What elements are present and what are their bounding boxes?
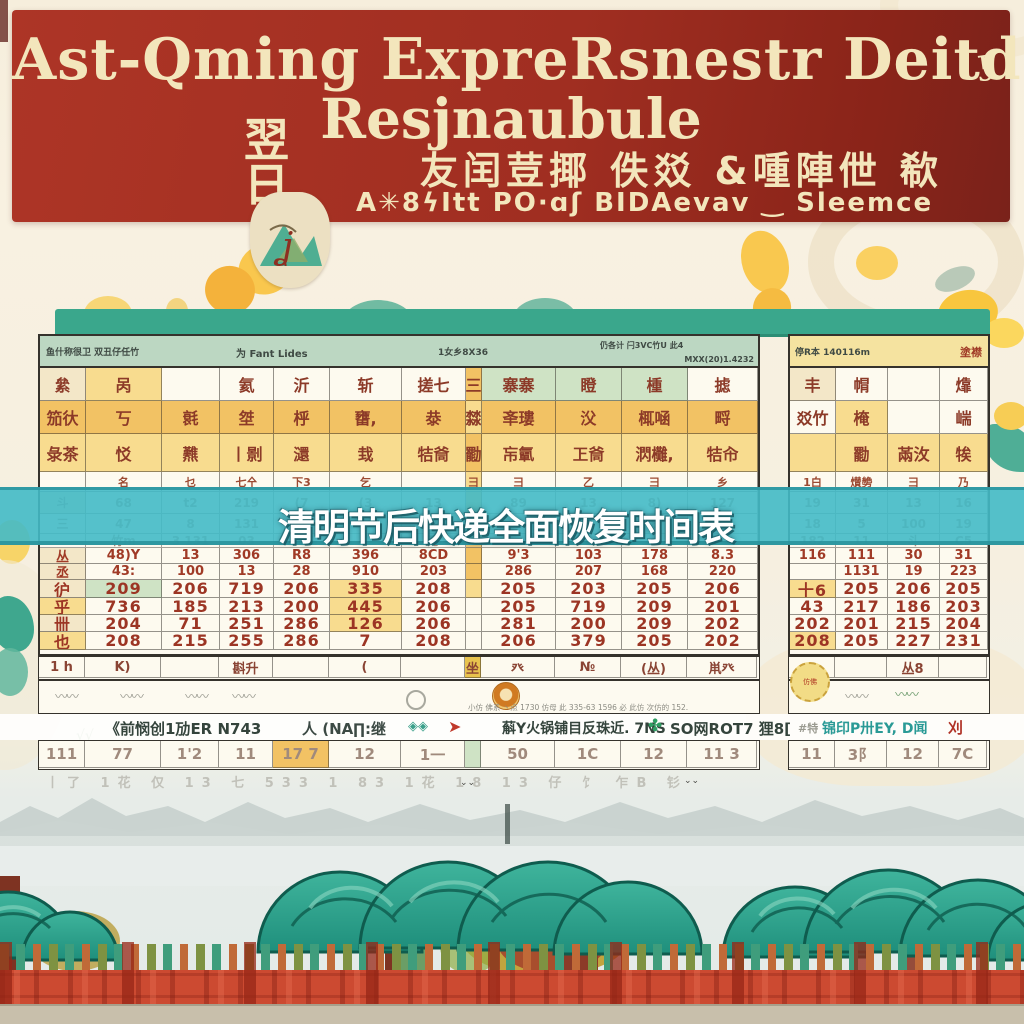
table-cell: K)	[85, 657, 161, 678]
table-cell: 三	[466, 368, 482, 401]
main-table-header: 鱼什称很卫 双丑仔任竹 为 Fant Lides 1女乡8X36 仍各计 闩3V…	[40, 336, 758, 368]
table-cell: 斟升	[219, 657, 273, 678]
petal-decoration	[994, 402, 1024, 430]
poster-canvas: √√ Ast-Qming ExpreRsnestr Deitde Resjnau…	[0, 0, 1024, 1024]
table-cell: 㲤	[162, 401, 220, 434]
table-row: 丰㡌㸆	[790, 368, 988, 401]
table-cell: 㸐	[162, 434, 220, 472]
table-row: 1 hK)斟升(坐癶№(丛)鼡癶	[39, 657, 759, 678]
table-cell: 寨寨	[482, 368, 556, 401]
table-cell: 19	[888, 564, 940, 580]
table-cell: 摅	[688, 368, 758, 401]
table-cell: 㽫,	[330, 401, 402, 434]
table-cell: 208	[790, 632, 836, 650]
footer-strip: 1 hK)斟升(坐癶№(丛)鼡癶	[38, 656, 760, 680]
table-cell: 201	[688, 598, 758, 615]
table-cell: 206	[888, 580, 940, 598]
table-cell: 227	[888, 632, 940, 650]
table-cell: 205	[622, 632, 688, 650]
table-cell: 217	[836, 598, 888, 615]
banner-pseudo-chinese-line: 友闰荳揶 佚㸚 &喠陣伳 欷	[420, 140, 943, 195]
table-cell	[401, 657, 465, 678]
table-cell: 209	[622, 598, 688, 615]
table-cell: 220	[688, 564, 758, 580]
table-cell: 㭺	[836, 401, 888, 434]
table-cell: 㘶	[220, 401, 274, 434]
footer-brand-text: #特	[798, 720, 818, 736]
table-cell: 㔥	[466, 434, 482, 472]
table-row: 絫呙氦沂斩搓七三寨寨瞪㮔摅	[40, 368, 758, 401]
table-cell: (	[329, 657, 401, 678]
table-cell: 205	[622, 580, 688, 598]
table-cell	[466, 598, 482, 615]
table-cell: 208	[86, 632, 162, 650]
table-cell: 㔥	[836, 434, 888, 472]
table-cell: 㪯㻲	[482, 401, 556, 434]
table-row: 208205227231	[790, 632, 988, 650]
table-cell: 㴸㰙,	[622, 434, 688, 472]
table-cell: 丨㔀	[220, 434, 274, 472]
table-cell: 斩	[330, 368, 402, 401]
table-cell	[790, 434, 836, 472]
table-cell: 205	[482, 580, 556, 598]
table-cell: 207	[556, 564, 622, 580]
table-cell: 116	[790, 548, 836, 564]
header-cell: 塗襟	[960, 344, 982, 360]
table-cell: 㣗	[40, 580, 86, 598]
overlay-title: 清明节后快递全面恢复时间表	[278, 497, 733, 551]
table-cell: 㸆	[940, 368, 988, 401]
table-cell: 㭯㖤	[622, 401, 688, 434]
sketch-doodle: 〰〰	[845, 686, 867, 705]
header-cell: 1女乡8X36	[438, 345, 488, 358]
table-cell	[466, 580, 482, 598]
table-cell: 㽟	[688, 401, 758, 434]
table-cell: 71	[162, 615, 220, 632]
table-cell	[790, 564, 836, 580]
table-cell: 㳇	[556, 401, 622, 434]
table-cell: 17 7	[273, 741, 329, 768]
table-cell: №	[555, 657, 621, 678]
table-row: 㔥㒼㳊㸻	[790, 434, 988, 472]
table-cell: 㠵㲷	[482, 434, 556, 472]
table-cell: 13	[220, 564, 274, 580]
table-row: 十6205206205	[790, 580, 988, 598]
table-row: 113119223	[790, 564, 988, 580]
table-row: 43217186203	[790, 598, 988, 615]
table-cell: 200	[556, 615, 622, 632]
table-cell: 12	[329, 741, 401, 768]
table-cell: 㦳	[330, 434, 402, 472]
table-row: 㣗209206719206335208205203205206	[40, 580, 758, 598]
table-cell: 沂	[274, 368, 330, 401]
table-cell: 185	[162, 598, 220, 615]
table-cell: 206	[402, 598, 466, 615]
ground-strip	[0, 1004, 1024, 1024]
circle-doodle-icon	[406, 690, 426, 710]
table-cell	[888, 368, 940, 401]
leaf-decoration	[984, 424, 1024, 472]
table-cell: 43	[790, 598, 836, 615]
table-cell: 306	[220, 548, 274, 564]
table-cell: 215	[888, 615, 940, 632]
table-cell: 11	[789, 741, 835, 768]
table-cell: 208	[402, 580, 466, 598]
header-cell: 鱼什称很卫 双丑仔任竹	[46, 345, 139, 358]
table-cell: 丰	[790, 368, 836, 401]
table-cell: 13	[162, 548, 220, 564]
table-cell: 㡌	[836, 368, 888, 401]
table-cell: 208	[402, 632, 466, 650]
table-cell: 彔茶	[40, 434, 86, 472]
footer-grid-row: 111771'21117 7121一501C1211 3	[38, 740, 760, 770]
side-table-header: 停R本 140116m 塗襟	[790, 336, 988, 368]
table-cell: 㵘	[466, 401, 482, 434]
table-row: 卌20471251286126206281200209202	[40, 615, 758, 632]
table-cell: 瞪	[556, 368, 622, 401]
table-cell: 笳㣕	[40, 401, 86, 434]
table-cell: 1'2	[161, 741, 219, 768]
sketch-doodle: 〰〰	[55, 686, 77, 705]
arrow-logo-icon: ➤	[448, 717, 461, 736]
sketch-doodle: 〰〰	[185, 686, 207, 705]
table-cell: 203	[940, 598, 988, 615]
table-cell: 209	[86, 580, 162, 598]
table-cell: 445	[330, 598, 402, 615]
table-cell: 719	[220, 580, 274, 598]
table-cell: 202	[688, 632, 758, 650]
table-cell	[465, 741, 481, 768]
table-cell: 3阝	[835, 741, 887, 768]
table-cell: 77	[85, 741, 161, 768]
footer-brand-text: 人 (NA∏:继	[302, 718, 386, 739]
title-banner: Ast-Qming ExpreRsnestr Deitde Resjnaubul…	[12, 10, 1010, 222]
table-cell: 卌	[40, 615, 86, 632]
banner-subtitle-line: A✳8ϟItt PO·ɑʃ BIDAevav ‿ Sleemce	[356, 188, 933, 218]
banner-title-line1: Ast-Qming ExpreRsnestr Deitde	[12, 26, 1010, 93]
table-cell: 乎	[40, 598, 86, 615]
table-cell: 231	[940, 632, 988, 650]
table-cell: 1131	[836, 564, 888, 580]
table-cell: 202	[790, 615, 836, 632]
table-cell: 丛8	[887, 657, 939, 678]
table-cell: 379	[556, 632, 622, 650]
table-cell: 215	[162, 632, 220, 650]
table-cell: 223	[940, 564, 988, 580]
petal-decoration	[856, 246, 898, 280]
table-cell: 氦	[220, 368, 274, 401]
table-cell: 205	[940, 580, 988, 598]
table-cell: 呙	[86, 368, 162, 401]
table-cell: 㒼㳊	[888, 434, 940, 472]
header-cell: 停R本 140116m	[795, 345, 870, 358]
table-row: 彔茶㤊㸐丨㔀㶎㦳㸵㸗㔥㠵㲷㠪㸗㴸㰙,㸵㠳	[40, 434, 758, 472]
table-cell: 癶	[481, 657, 555, 678]
table-cell: 205	[482, 598, 556, 615]
bottom-scenery: ⌄⌄ ⌄⌄	[0, 776, 1024, 1024]
table-cell	[273, 657, 329, 678]
table-row: 㸚竹㭺㟨	[790, 401, 988, 434]
trophy-icon: ʝ	[250, 192, 330, 288]
table-row: 乎736185213200445206205719209201	[40, 598, 758, 615]
footer-brand-text: 锦印P卅EY, D闻	[822, 718, 927, 738]
table-cell: 204	[940, 615, 988, 632]
table-cell: 㶎	[274, 434, 330, 472]
table-cell: 168	[622, 564, 688, 580]
brush-squiggle-icon: ʝ	[280, 226, 293, 267]
table-cell: 丞	[40, 564, 86, 580]
ink-smudge	[0, 0, 8, 42]
table-row: 也2082152552867208206379205202	[40, 632, 758, 650]
table-cell: 206	[688, 580, 758, 598]
table-cell: 100	[162, 564, 220, 580]
table-cell: 111	[836, 548, 888, 564]
table-cell	[939, 657, 987, 678]
table-cell: 206	[162, 580, 220, 598]
table-cell: 203	[556, 580, 622, 598]
table-cell: 十6	[790, 580, 836, 598]
table-cell	[835, 657, 887, 678]
header-cell: 仍各计 闩3VC竹U 此4	[600, 340, 683, 351]
table-cell: 丛	[40, 548, 86, 564]
table-cell: 48)Y	[86, 548, 162, 564]
table-cell: 255	[220, 632, 274, 650]
table-cell	[466, 632, 482, 650]
table-cell: 719	[556, 598, 622, 615]
table-cell: 也	[40, 632, 86, 650]
table-cell: 11	[219, 741, 273, 768]
fence-posts	[0, 942, 1024, 1006]
table-cell: 丂	[86, 401, 162, 434]
table-row: 丞43:1001328910203286207168220	[40, 564, 758, 580]
table-cell: 186	[888, 598, 940, 615]
table-cell	[888, 401, 940, 434]
table-cell: 12	[887, 741, 939, 768]
table-cell: 126	[330, 615, 402, 632]
bird-icon: ⌄⌄	[460, 778, 475, 788]
table-cell: 203	[402, 564, 466, 580]
table-cell: 335	[330, 580, 402, 598]
table-cell: 286	[274, 615, 330, 632]
tiny-caption: 小仿 佛系 丶点 1730 仿母 此 335-63 1596 必 此仿 次仿的 …	[468, 702, 688, 713]
table-cell	[466, 615, 482, 632]
table-cell: 㸵㸗	[402, 434, 466, 472]
table-cell: 30	[888, 548, 940, 564]
table-cell: 1 h	[39, 657, 85, 678]
table-cell: 251	[220, 615, 274, 632]
table-cell: 1一	[401, 741, 465, 768]
footer-logo-line: 《前悯创1劢ER N743 人 (NA∏:继 ◈◈ ➤ 蔛Y火锅铺目反珠近. 7…	[0, 714, 1024, 740]
table-cell: 31	[940, 548, 988, 564]
table-cell: 㤊	[86, 434, 162, 472]
table-cell: 㸵㠳	[688, 434, 758, 472]
table-cell: 㟨	[940, 401, 988, 434]
sketch-doodle: 〰〰	[232, 686, 254, 705]
table-cell	[466, 564, 482, 580]
table-cell: 910	[330, 564, 402, 580]
table-cell: 205	[836, 632, 888, 650]
table-cell: 28	[274, 564, 330, 580]
table-cell: 坐	[465, 657, 481, 678]
table-cell: 281	[482, 615, 556, 632]
table-cell: 㮔	[622, 368, 688, 401]
table-cell: 111	[39, 741, 85, 768]
table-cell: 11 3	[687, 741, 757, 768]
table-cell: 205	[836, 580, 888, 598]
table-cell: 㸻	[940, 434, 988, 472]
table-cell: 㳟	[402, 401, 466, 434]
table-cell: 286	[482, 564, 556, 580]
table-row: 113阝127C	[789, 741, 989, 768]
table-row: 笳㣕丂㲤㘶㭔㽫,㳟㵘㪯㻲㳇㭯㖤㽟	[40, 401, 758, 434]
table-cell: 201	[836, 615, 888, 632]
table-cell: 搓七	[402, 368, 466, 401]
petal-decoration	[984, 318, 1024, 348]
red-mark-icon: 刈	[948, 717, 963, 738]
table-row: 202201215204	[790, 615, 988, 632]
clover-logo-icon: ✤	[648, 716, 662, 736]
footer-brand-text: SO网ROT7 狸8[	[670, 718, 791, 739]
table-cell: 43:	[86, 564, 162, 580]
table-cell: 736	[86, 598, 162, 615]
footer-brand-text: 《前悯创1劢ER N743	[105, 718, 261, 739]
footer-brand-text: 蔛Y火锅铺目反珠近. 7NS	[502, 718, 666, 738]
table-cell: 㭔	[274, 401, 330, 434]
table-cell: 12	[621, 741, 687, 768]
brand-marks-icon: ◈◈	[408, 719, 428, 734]
header-cell: MXX(20)1.4232	[684, 355, 754, 364]
table-row: 111771'21117 7121一501C1211 3	[39, 741, 759, 768]
table-cell: 50	[481, 741, 555, 768]
sketch-doodle: 〰〰	[120, 686, 142, 705]
table-cell: 㸚竹	[790, 401, 836, 434]
table-cell: 209	[622, 615, 688, 632]
yellow-stamp-icon: 仿佛	[790, 662, 830, 702]
table-cell: 206	[402, 615, 466, 632]
table-cell: 鼡癶	[687, 657, 757, 678]
table-cell: 206	[274, 580, 330, 598]
footer-grid-row: 113阝127C	[788, 740, 990, 770]
header-cell: 为 Fant Lides	[236, 345, 308, 360]
table-cell: (丛)	[621, 657, 687, 678]
bird-icon: ⌄⌄	[684, 776, 699, 786]
table-cell: 㠪㸗	[556, 434, 622, 472]
table-cell	[161, 657, 219, 678]
table-cell: 200	[274, 598, 330, 615]
table-cell: 1C	[555, 741, 621, 768]
sketch-doodle: 〰〰	[895, 684, 917, 703]
table-cell: 202	[688, 615, 758, 632]
table-cell: 213	[220, 598, 274, 615]
table-cell: 7C	[939, 741, 987, 768]
table-cell: 絫	[40, 368, 86, 401]
table-cell: 204	[86, 615, 162, 632]
table-cell: 7	[330, 632, 402, 650]
table-top-bar	[55, 309, 990, 337]
table-cell: 286	[274, 632, 330, 650]
table-cell	[162, 368, 220, 401]
title-overlay-band: 清明节后快递全面恢复时间表	[0, 487, 1024, 545]
table-row: 1161113031	[790, 548, 988, 564]
table-cell: 206	[482, 632, 556, 650]
